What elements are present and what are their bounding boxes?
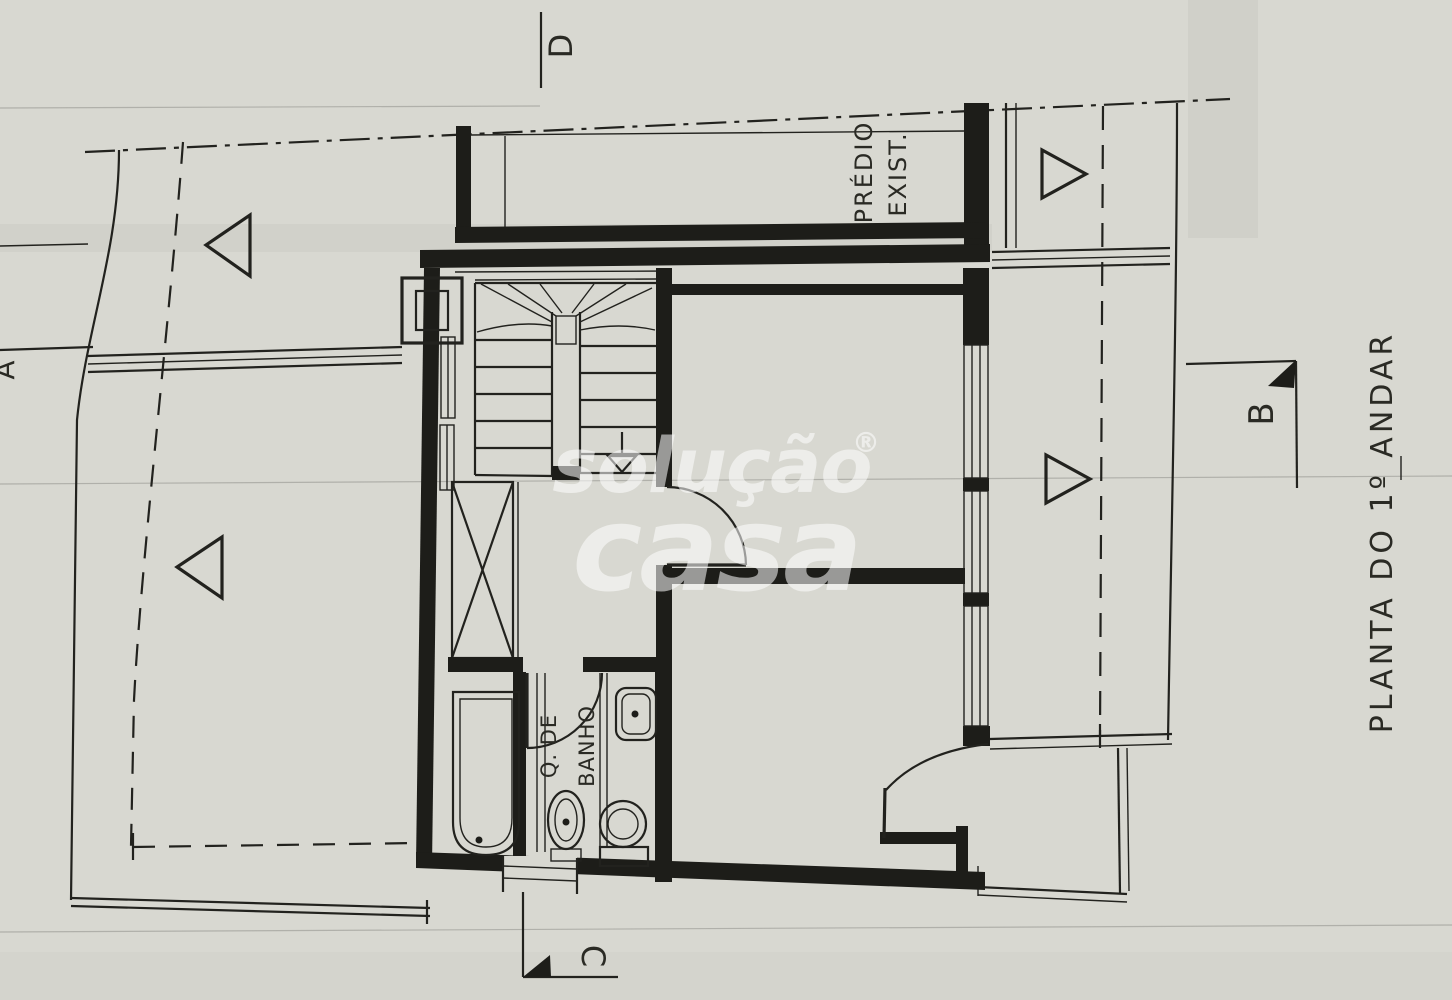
balcony-slab-line	[88, 363, 402, 372]
balcony-slab-line	[88, 355, 402, 364]
floor-plan-drawing: D A B C	[0, 0, 1452, 1000]
stair-newel-cap	[556, 316, 576, 344]
section-arrow-b	[1268, 360, 1296, 388]
wall	[456, 126, 471, 232]
terrace-edge	[990, 734, 1172, 739]
bathroom-label-line1: Q. DE	[537, 714, 561, 778]
rear-door-swing-arc	[886, 744, 988, 790]
section-letter-b: B	[1242, 402, 1282, 425]
rear-door-leaf	[884, 788, 885, 838]
wall	[963, 593, 989, 606]
closet-x	[452, 482, 518, 658]
terrace-edge	[978, 895, 1127, 902]
section-letter-d: D	[542, 34, 580, 59]
left-wall	[416, 268, 440, 866]
watermark: solução ® casa	[552, 421, 880, 618]
stair-treads-left	[476, 340, 552, 448]
right-wall-window	[964, 345, 988, 478]
balcony-slab-line	[88, 347, 402, 356]
right-wall-window	[964, 606, 988, 726]
rear-door-corner	[880, 744, 988, 888]
watermark-registered-icon: ®	[852, 426, 880, 459]
section-letter-c: C	[574, 945, 612, 967]
interior-wall-room-top	[672, 284, 964, 295]
bathtub-outer	[453, 692, 519, 855]
direction-triangle-left-lower	[177, 537, 222, 598]
washbasin	[616, 688, 656, 740]
plan-title-text: PLANTA DO 1º ANDAR	[1365, 331, 1400, 733]
bottom-wall	[416, 852, 985, 890]
terrace-edge	[1127, 748, 1129, 891]
window-frame	[964, 491, 988, 593]
stair-edge	[475, 475, 552, 476]
rear-terrace	[978, 734, 1172, 902]
front-wall-inner-line	[475, 279, 656, 280]
section-line-b-drop	[1296, 361, 1297, 488]
terrace-edge	[990, 744, 1172, 749]
balcony-slab-line	[992, 264, 1170, 268]
wall	[880, 832, 962, 844]
toilet-bowl-inner	[608, 809, 638, 839]
direction-triangle-right-upper	[1042, 150, 1086, 198]
bathroom-label-line2: BANHO	[575, 705, 599, 787]
direction-triangle-right-lower	[1046, 455, 1090, 503]
dashed-projection-bottom	[133, 843, 418, 847]
left-wall-window	[440, 337, 455, 490]
bathroom-wall-right	[655, 660, 672, 882]
paper-crease	[0, 106, 540, 108]
paper-crease	[0, 925, 1452, 932]
bathroom-wall-top	[448, 657, 523, 672]
right-wall-window	[964, 491, 988, 593]
wall	[963, 478, 989, 491]
drawing-title: PLANTA DO 1º ANDAR	[1365, 331, 1401, 733]
scan-shadow-bottom	[0, 952, 1452, 1000]
bathtub-drain	[476, 837, 483, 844]
balcony-slab-line	[992, 248, 1170, 252]
scanned-floor-plan-sheet: D A B C	[0, 0, 1452, 1000]
existing-building-label-line1: PRÉDIO	[849, 121, 878, 224]
wall	[963, 726, 990, 746]
dashed-projection-right	[1100, 106, 1103, 737]
window-frame	[964, 345, 988, 478]
window-frame	[964, 606, 988, 726]
bathroom: Q. DE BANHO	[448, 657, 672, 882]
bathtub-inner	[460, 699, 512, 847]
front-wall-inner-line	[455, 271, 672, 272]
existing-building-label-line2: EXIST.	[884, 131, 912, 216]
existing-building: PRÉDIO EXIST.	[455, 103, 1016, 248]
stair-winders	[477, 284, 655, 332]
terrace-edge	[1118, 748, 1120, 893]
balcony-slab-line	[992, 256, 1170, 260]
site-boundary-left	[71, 150, 119, 900]
bidet	[548, 791, 584, 861]
watermark-line2: casa	[572, 480, 859, 618]
bidet-drain	[563, 819, 570, 826]
bathtub	[453, 692, 519, 855]
wall	[956, 826, 968, 888]
site-boundary-right	[1168, 103, 1177, 740]
washbasin-drain	[632, 711, 639, 718]
scan-shadow-right	[1188, 0, 1258, 238]
section-line-a	[0, 347, 93, 350]
right-wall	[963, 268, 990, 746]
wall	[963, 268, 989, 345]
section-line-b	[1186, 361, 1296, 364]
terrace-edge	[978, 887, 1127, 894]
section-letter-a: A	[0, 360, 21, 379]
